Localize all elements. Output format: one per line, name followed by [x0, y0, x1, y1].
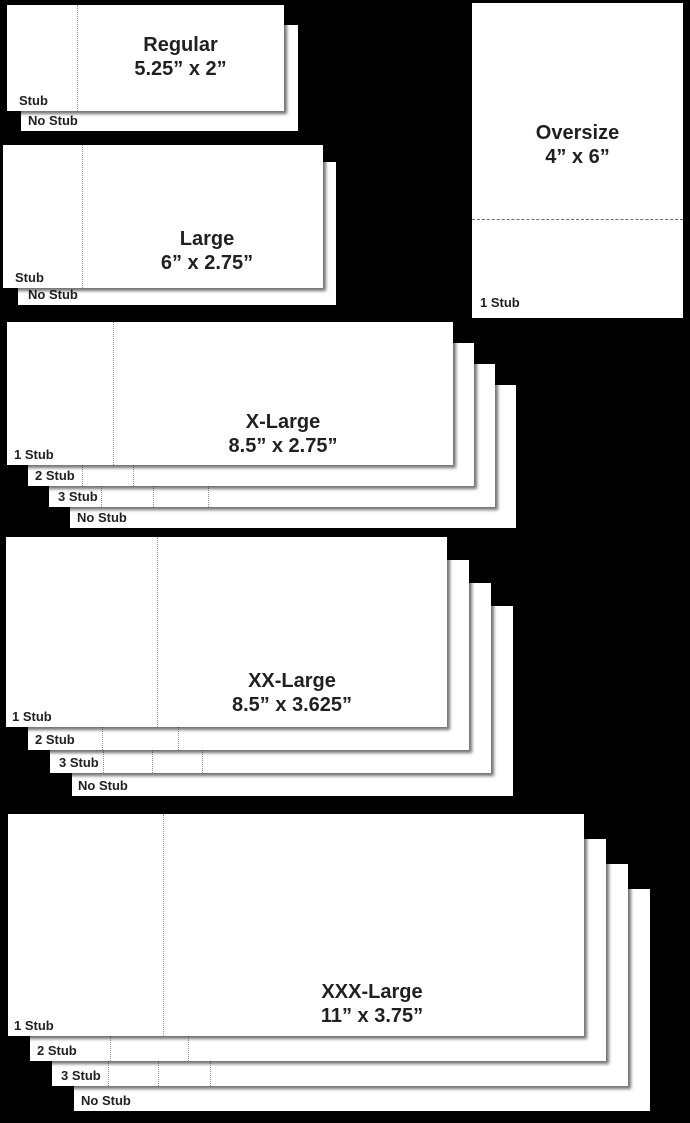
perforation-line	[82, 145, 83, 288]
stub-count-label: No Stub	[78, 778, 128, 793]
stub-count-label: 1 Stub	[480, 295, 520, 310]
ticket-dimensions: 6” x 2.75”	[91, 251, 323, 275]
xxlarge-title-block: XX-Large 8.5” x 3.625”	[137, 669, 447, 717]
stub-count-label: 2 Stub	[35, 732, 75, 747]
ticket-name: X-Large	[113, 410, 453, 434]
stub-count-label: Stub	[15, 270, 44, 285]
ticket-name: XX-Large	[137, 669, 447, 693]
ticket-dimensions: 4” x 6”	[472, 145, 683, 169]
xxxlarge-ticket-1stub: XXX-Large 11” x 3.75” 1 Stub	[8, 814, 584, 1036]
oversize-ticket-1stub: Oversize 4” x 6” 1 Stub	[472, 3, 683, 318]
ticket-name: Large	[91, 227, 323, 251]
ticket-name: XXX-Large	[160, 980, 584, 1004]
stub-count-label: 2 Stub	[37, 1043, 77, 1058]
ticket-name: Regular	[77, 33, 284, 57]
ticket-dimensions: 8.5” x 2.75”	[113, 434, 453, 458]
large-ticket-stub: Large 6” x 2.75” Stub	[3, 145, 323, 288]
stub-count-label: 3 Stub	[61, 1068, 101, 1083]
stub-count-label: No Stub	[81, 1093, 131, 1108]
stub-count-label: 2 Stub	[35, 468, 75, 483]
ticket-dimensions: 8.5” x 3.625”	[137, 693, 447, 717]
perforation-line	[472, 219, 683, 220]
stub-count-label: Stub	[19, 93, 48, 108]
xxlarge-ticket-1stub: XX-Large 8.5” x 3.625” 1 Stub	[6, 537, 447, 727]
ticket-dimensions: 5.25” x 2”	[77, 57, 284, 81]
stub-count-label: No Stub	[77, 510, 127, 525]
stub-count-label: 1 Stub	[14, 1018, 54, 1033]
oversize-title-block: Oversize 4” x 6”	[472, 121, 683, 169]
stub-count-label: 1 Stub	[14, 447, 54, 462]
ticket-dimensions: 11” x 3.75”	[160, 1004, 584, 1028]
stub-count-label: No Stub	[28, 287, 78, 302]
ticket-name: Oversize	[472, 121, 683, 145]
xlarge-title-block: X-Large 8.5” x 2.75”	[113, 410, 453, 458]
xlarge-ticket-1stub: X-Large 8.5” x 2.75” 1 Stub	[7, 322, 453, 465]
regular-ticket-stub: Regular 5.25” x 2” Stub	[7, 5, 284, 111]
stub-count-label: 3 Stub	[58, 489, 98, 504]
xxxlarge-title-block: XXX-Large 11” x 3.75”	[160, 980, 584, 1028]
large-title-block: Large 6” x 2.75”	[91, 227, 323, 275]
regular-title-block: Regular 5.25” x 2”	[77, 33, 284, 81]
ticket-sizes-diagram: No Stub Regular 5.25” x 2” Stub No Stub …	[0, 0, 690, 1123]
stub-count-label: No Stub	[28, 113, 78, 128]
stub-count-label: 1 Stub	[12, 709, 52, 724]
stub-count-label: 3 Stub	[59, 755, 99, 770]
